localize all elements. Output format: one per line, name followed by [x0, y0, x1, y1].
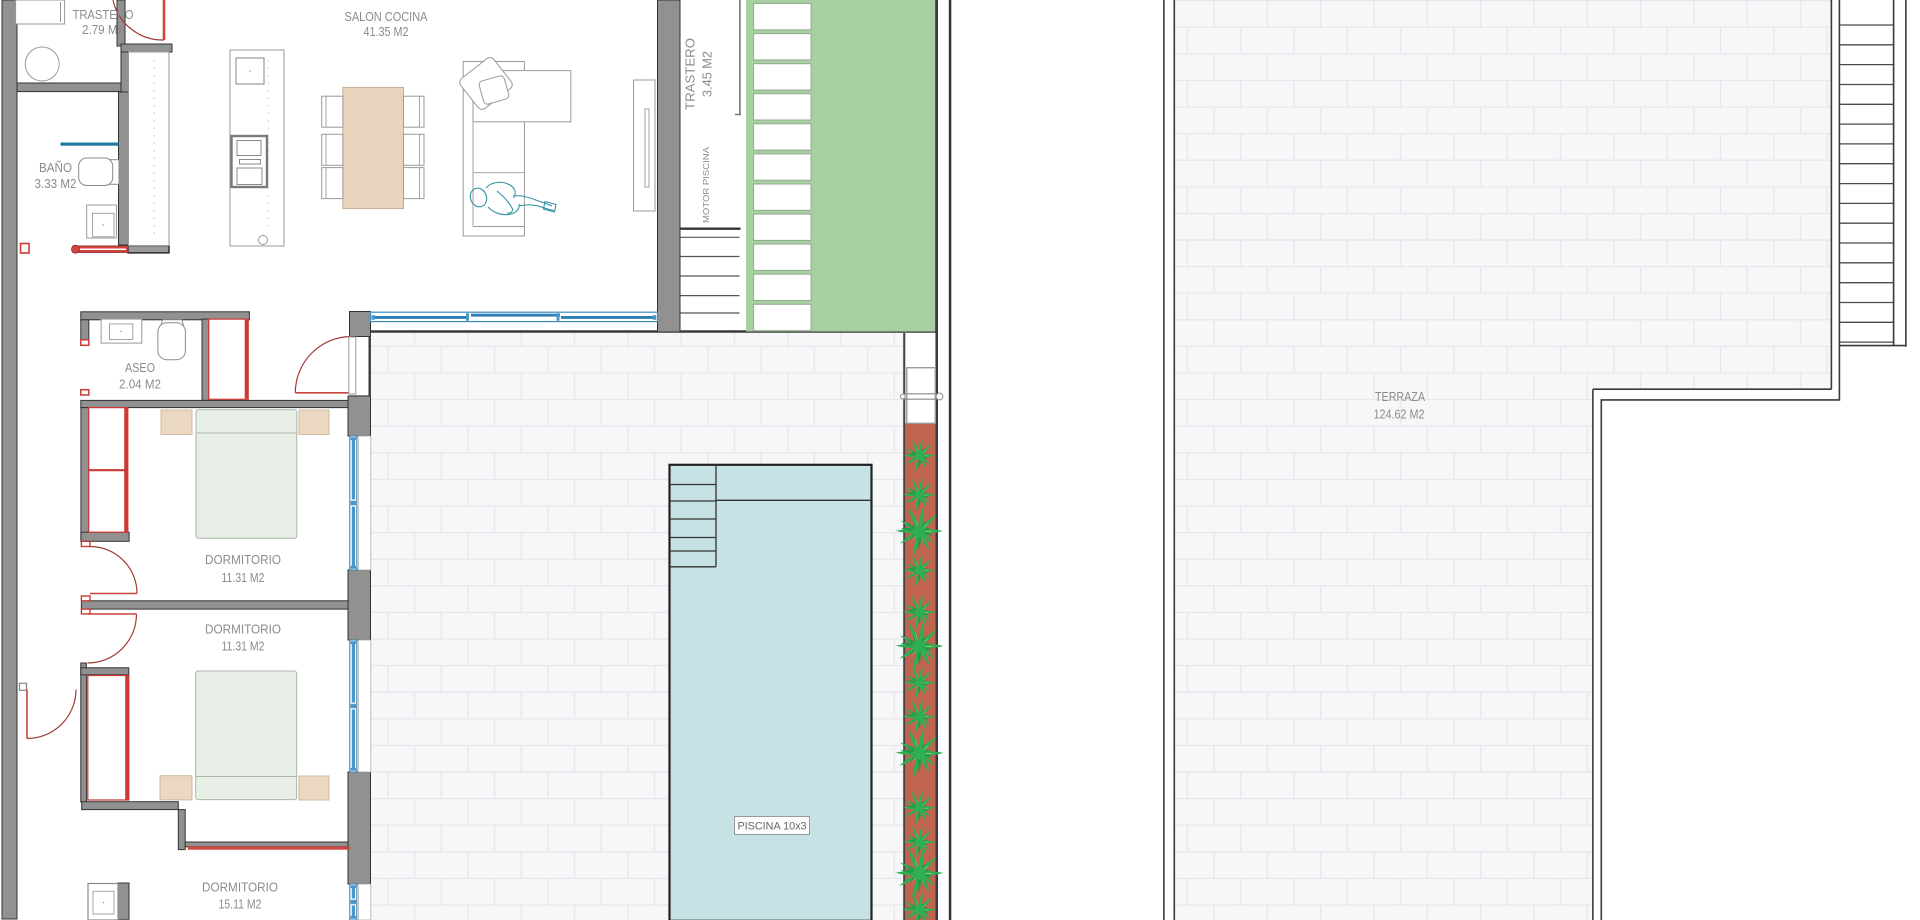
svg-text:3.45 M2: 3.45 M2 [701, 51, 715, 97]
svg-text:TERRAZA: TERRAZA [1375, 389, 1425, 404]
svg-text:15.11 M2: 15.11 M2 [219, 897, 262, 912]
svg-text:3.33 M2: 3.33 M2 [35, 176, 77, 191]
svg-text:ASEO: ASEO [125, 360, 155, 375]
svg-text:41.35 M2: 41.35 M2 [364, 24, 409, 39]
svg-text:124.62 M2: 124.62 M2 [1374, 407, 1425, 422]
svg-text:DORMITORIO: DORMITORIO [202, 880, 278, 895]
svg-text:2.04 M2: 2.04 M2 [119, 377, 161, 392]
svg-text:MOTOR PISCINA: MOTOR PISCINA [701, 147, 711, 223]
svg-text:SALON COCINA: SALON COCINA [345, 9, 428, 24]
svg-text:TRASTERO: TRASTERO [684, 38, 698, 110]
svg-text:BAÑO: BAÑO [39, 160, 72, 175]
svg-text:11.31 M2: 11.31 M2 [222, 639, 265, 654]
svg-text:11.31 M2: 11.31 M2 [222, 570, 265, 585]
svg-text:2.79 M2: 2.79 M2 [82, 22, 124, 37]
svg-text:PISCINA 10x3: PISCINA 10x3 [737, 821, 806, 833]
svg-text:DORMITORIO: DORMITORIO [205, 622, 281, 637]
svg-text:DORMITORIO: DORMITORIO [205, 552, 281, 567]
svg-text:TRASTERO: TRASTERO [73, 7, 134, 22]
